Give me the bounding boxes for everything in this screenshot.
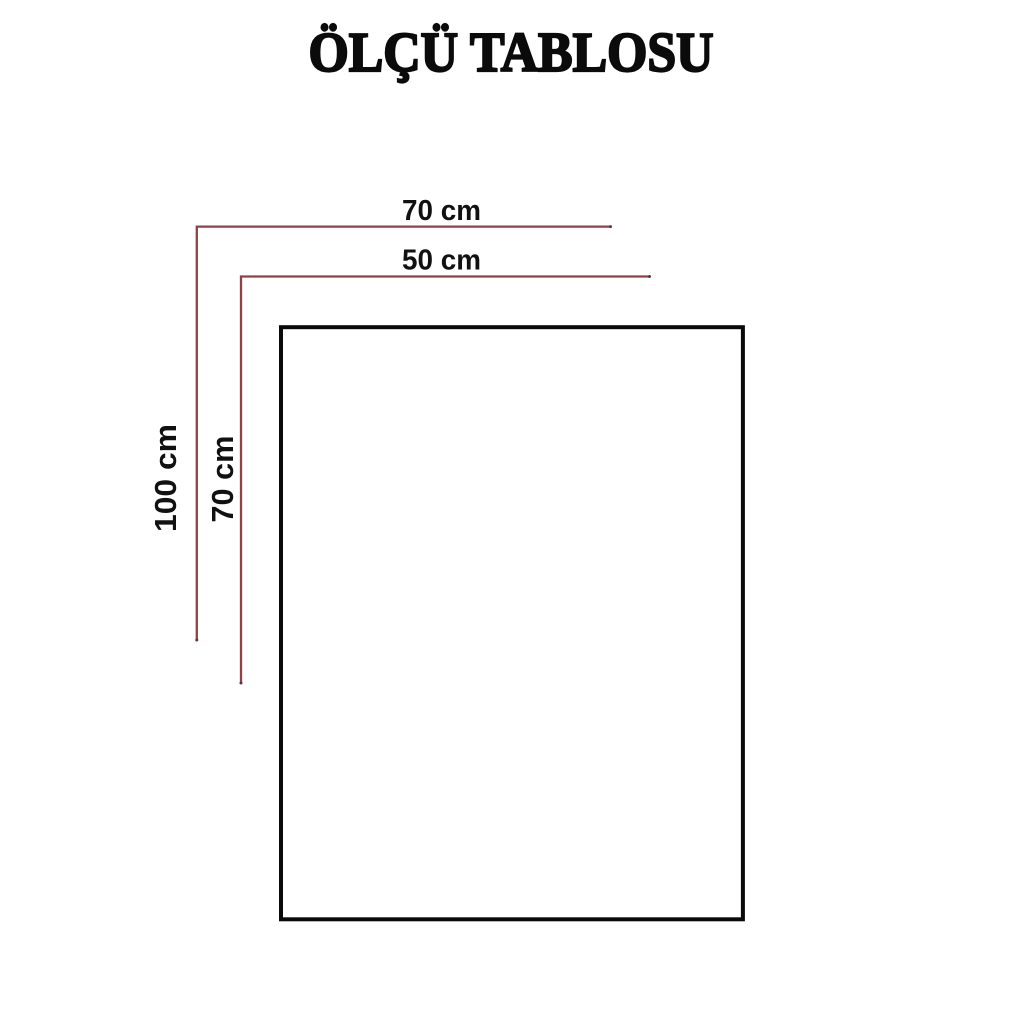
svg-text:50 cm: 50 cm [402,245,481,277]
svg-text:70 cm: 70 cm [402,195,481,227]
svg-text:ÖLÇÜ TABLOSU: ÖLÇÜ TABLOSU [309,22,714,84]
svg-text:70 cm: 70 cm [205,436,240,523]
svg-text:100 cm: 100 cm [148,424,183,532]
